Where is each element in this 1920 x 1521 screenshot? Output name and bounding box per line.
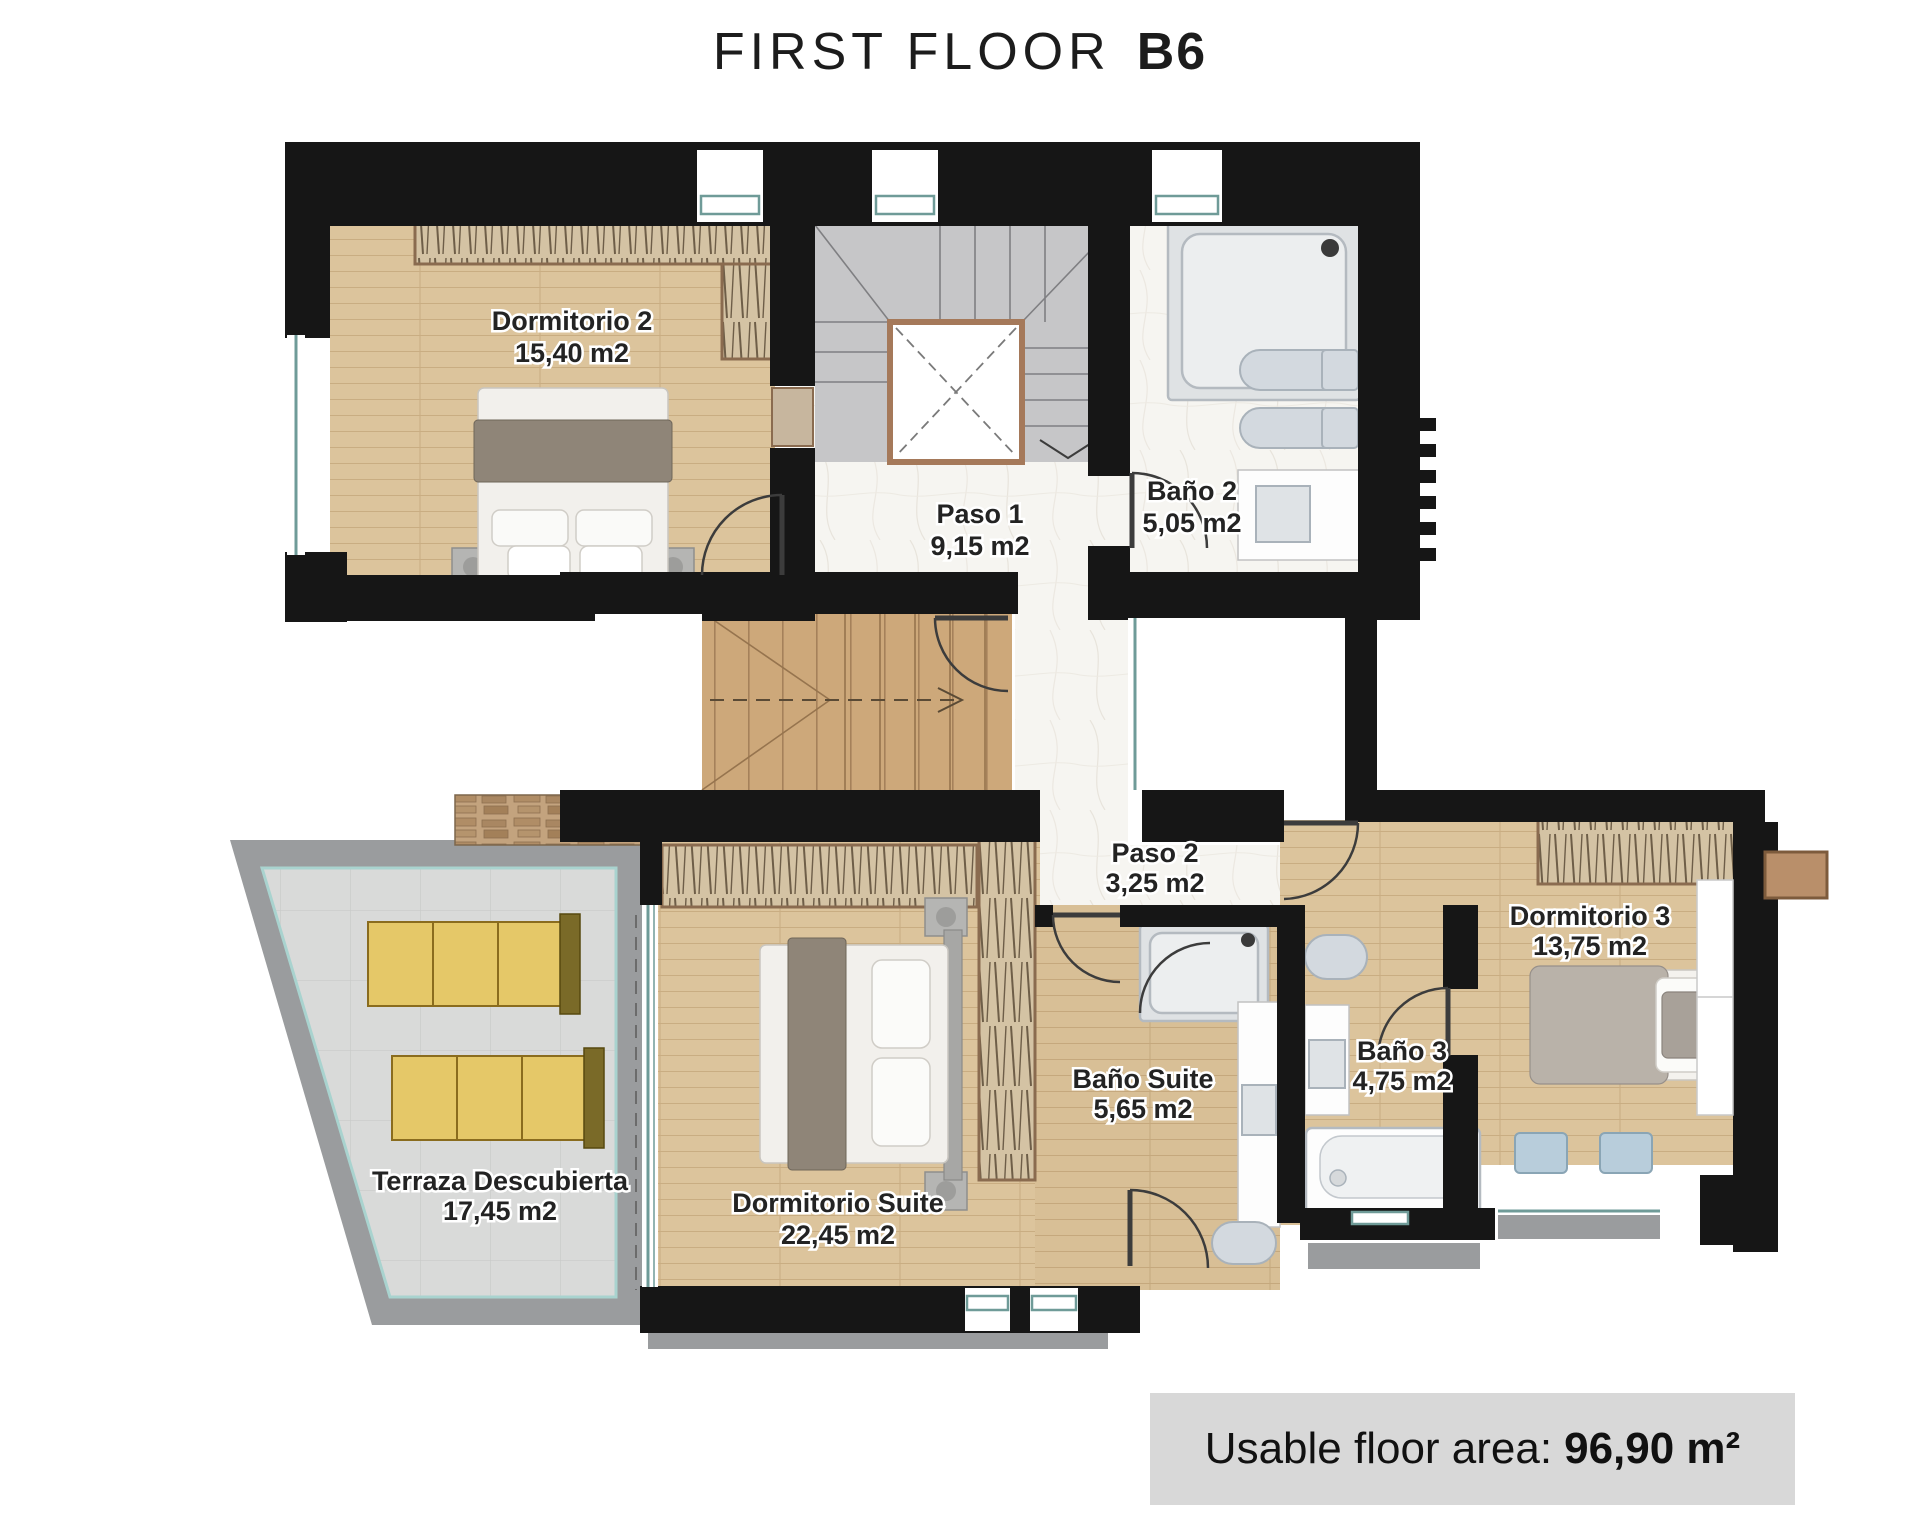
window-ledge: [1765, 852, 1827, 898]
terrace: [230, 795, 645, 1325]
pillow: [576, 510, 652, 546]
window-bano-3-bottom: [1352, 1212, 1408, 1224]
window-suite-bottom-2: [1030, 1288, 1078, 1331]
sink: [1309, 1040, 1345, 1088]
area-terraza: 17,45 m2: [443, 1196, 557, 1226]
window-suite-bottom-1: [965, 1288, 1010, 1331]
wardrobe-dormitorio-3: [1538, 818, 1738, 884]
shower-drain: [1321, 239, 1339, 257]
exterior-notch: [1142, 618, 1345, 794]
area-bano-3: 4,75 m2: [1352, 1066, 1451, 1096]
floorplan-drawing: Dormitorio 2 15,40 m2 Paso 1 9,15 m2 Bañ…: [0, 0, 1920, 1521]
usable-area-box: Usable floor area: 96,90 m²: [1150, 1393, 1795, 1505]
shower-tray-inner: [1150, 933, 1258, 1013]
pillow: [872, 960, 930, 1048]
area-dormitorio-3: 13,75 m2: [1533, 931, 1647, 961]
usable-area-label: Usable floor area:: [1205, 1424, 1552, 1474]
area-bano-suite: 5,65 m2: [1093, 1094, 1192, 1124]
window-dormitorio-3-right: [1697, 880, 1733, 1115]
tub-drain: [1330, 1170, 1346, 1186]
label-dormitorio-2: Dormitorio 2: [492, 306, 653, 336]
sun-lounger-1: [368, 914, 580, 1014]
usable-area-value: 96,90 m²: [1564, 1424, 1740, 1474]
label-dormitorio-suite: Dormitorio Suite: [732, 1188, 944, 1218]
wardrobe-suite-column: [979, 832, 1035, 1180]
label-dormitorio-3: Dormitorio 3: [1510, 901, 1671, 931]
blanket: [788, 938, 846, 1170]
label-paso-1: Paso 1: [936, 499, 1023, 529]
bed-dormitorio-2: [452, 388, 694, 588]
sun-lounger-2: [392, 1048, 604, 1148]
label-bano-3: Baño 3: [1357, 1036, 1447, 1066]
label-paso-2: Paso 2: [1111, 838, 1198, 868]
label-bano-2: Baño 2: [1147, 476, 1237, 506]
window-top-2: [872, 150, 938, 222]
window-suite-left: [642, 905, 658, 1287]
toilet-tank: [1322, 350, 1358, 390]
window-top-1: [697, 150, 763, 222]
label-bano-suite: Baño Suite: [1072, 1064, 1213, 1094]
area-paso-2: 3,25 m2: [1105, 868, 1204, 898]
shower-drain: [1241, 933, 1255, 947]
bidet-tank: [1322, 408, 1358, 448]
balcony-ledge-bano3: [1308, 1243, 1480, 1269]
pillow: [492, 510, 568, 546]
sink: [1242, 1085, 1276, 1135]
area-bano-2: 5,05 m2: [1142, 508, 1241, 538]
bed-dormitorio-suite: [760, 898, 967, 1210]
balcony-ledge-dorm3: [1498, 1215, 1660, 1239]
window-dormitorio-2-left: [287, 335, 305, 555]
wall-door-panel: [772, 388, 813, 446]
toilet: [1212, 1222, 1276, 1264]
stool: [1515, 1133, 1567, 1173]
area-dormitorio-suite: 22,45 m2: [781, 1220, 895, 1250]
sink: [1256, 486, 1310, 542]
window-corridor-right: [1128, 618, 1142, 790]
area-dormitorio-2: 15,40 m2: [515, 338, 629, 368]
toilet: [1305, 935, 1367, 979]
blanket: [474, 420, 672, 482]
balcony-ledge-suite: [648, 1333, 1108, 1349]
label-terraza: Terraza Descubierta: [372, 1166, 629, 1196]
duvet: [1530, 966, 1668, 1084]
floorplan-page: FIRST FLOORB6: [0, 0, 1920, 1521]
stool: [1600, 1133, 1652, 1173]
area-paso-1: 9,15 m2: [930, 531, 1029, 561]
window-top-3: [1152, 150, 1222, 222]
pillow: [872, 1058, 930, 1146]
